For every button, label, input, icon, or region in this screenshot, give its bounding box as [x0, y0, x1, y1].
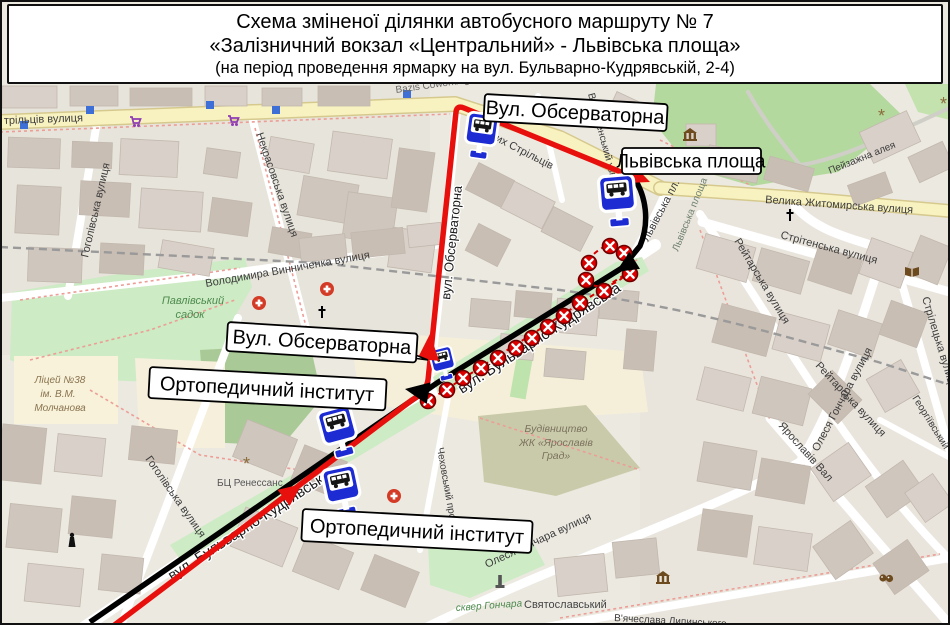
closed-stop-marker — [603, 239, 618, 254]
building — [70, 86, 118, 106]
poi-label: Молчанова — [34, 403, 86, 414]
closed-stop-marker — [541, 320, 556, 335]
asterisk-icon: * — [878, 106, 885, 126]
callout-label: Львівська площа — [617, 152, 766, 173]
asterisk-icon: * — [940, 94, 947, 114]
poi-label: Будівництво — [525, 423, 588, 435]
building — [407, 222, 443, 247]
building — [7, 137, 60, 169]
closed-stop-marker — [582, 256, 597, 271]
building — [54, 434, 106, 477]
closed-stop-marker — [597, 284, 612, 299]
poi-label: Град» — [542, 450, 571, 462]
title-box: Схема зміненої ділянки автобусного маршр… — [7, 4, 943, 84]
hospital-icon — [252, 296, 266, 310]
closed-stop-marker — [573, 296, 588, 311]
building — [6, 503, 62, 552]
building — [24, 563, 84, 607]
asterisk-icon: * — [243, 454, 250, 474]
building — [328, 131, 393, 179]
poi-label: БЦ Ренессанс — [217, 478, 283, 489]
building — [755, 458, 811, 504]
building — [612, 538, 660, 578]
building — [544, 348, 586, 379]
route-map: * * * трільців вулиця Bazis Coworking Сі… — [0, 0, 950, 625]
building — [130, 88, 192, 106]
closed-stop-marker — [525, 331, 540, 346]
closed-stop-marker — [474, 361, 489, 376]
title-line-2: «Залізничний вокзал «Центральний» - Льві… — [210, 34, 741, 58]
closed-stop-marker — [440, 383, 455, 398]
callout-lvivska-square: Львівська площа — [617, 148, 766, 174]
park-label: Павлівський — [162, 295, 224, 307]
building — [15, 185, 61, 235]
building — [27, 247, 82, 283]
building — [697, 509, 752, 558]
hospital-icon — [387, 489, 401, 503]
building — [119, 139, 179, 178]
building — [203, 148, 240, 178]
building — [68, 496, 116, 538]
building — [554, 553, 608, 596]
building — [469, 298, 511, 329]
building — [208, 197, 252, 236]
building — [318, 86, 370, 106]
building — [0, 424, 47, 484]
park-label: садок — [175, 309, 205, 321]
building — [623, 329, 656, 371]
building — [2, 86, 57, 108]
title-line-1: Схема зміненої ділянки автобусного маршр… — [236, 10, 714, 34]
closed-stop-marker — [557, 309, 572, 324]
title-line-3: (на період проведення ярмарку на вул. Бу… — [215, 58, 735, 79]
poi-label: Ліцей №38 — [34, 375, 86, 386]
closed-stop-marker — [491, 351, 506, 366]
poi-label: ЖК «Ярославів — [518, 437, 593, 449]
place-label: Святославський — [524, 599, 607, 611]
building — [391, 148, 435, 212]
closed-stop-marker — [579, 273, 594, 288]
poi-label: ім. В.М. — [40, 389, 75, 400]
building — [99, 243, 145, 275]
building — [139, 188, 204, 232]
building — [262, 88, 302, 106]
closed-stop-marker — [509, 341, 524, 356]
hospital-icon — [320, 282, 334, 296]
closed-stop-marker — [456, 371, 471, 386]
building — [754, 526, 813, 571]
